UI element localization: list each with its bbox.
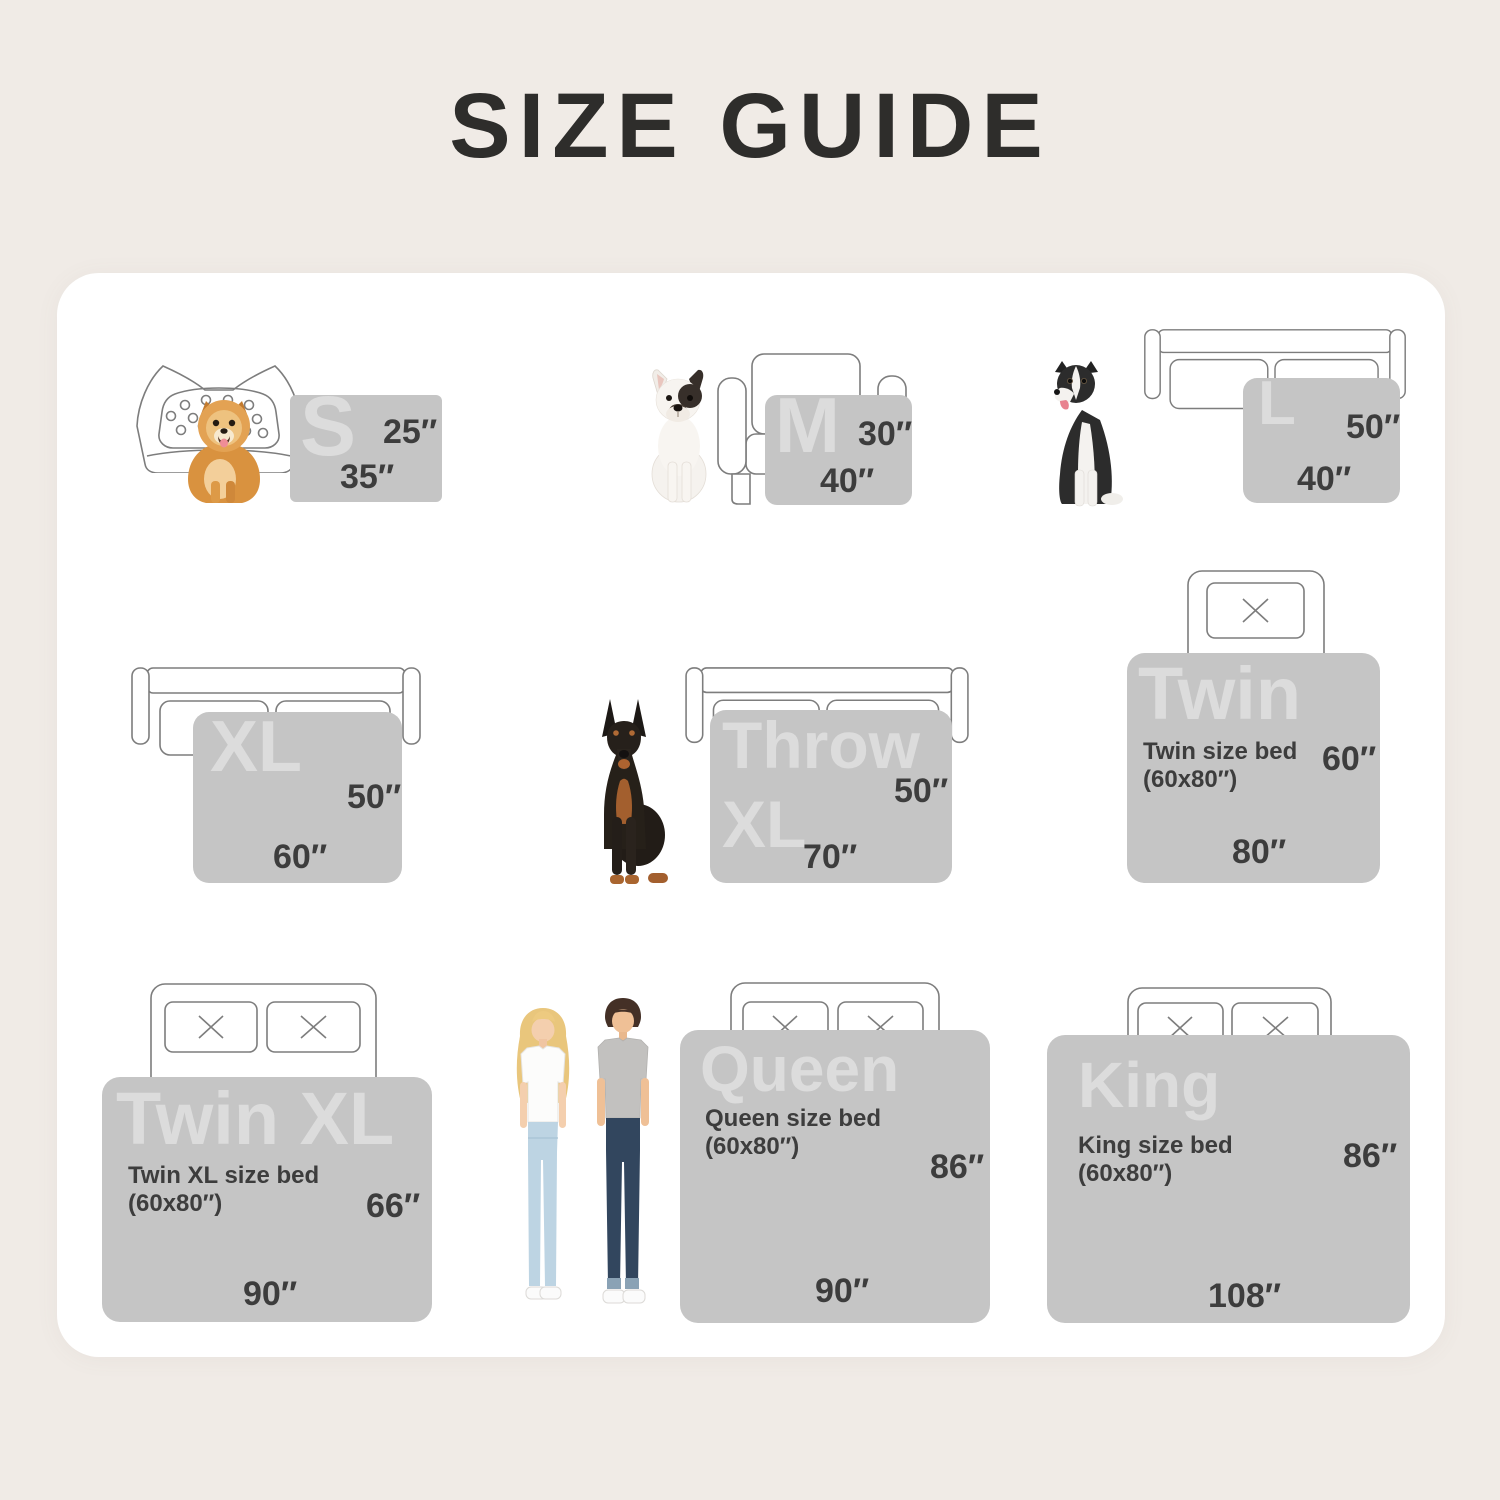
dim-king-side: 86″ [1343,1139,1397,1173]
desc-king: King size bed(60x80″) [1078,1132,1233,1187]
desc-king-line2: (60x80″) [1078,1160,1233,1188]
desc-king-line1: King size bed [1078,1132,1233,1160]
size-guide-infographic: SIZE GUIDE S 25″ 35″ [0,0,1500,1500]
size-cell-king: King King size bed(60x80″) 86″ 108″ [0,0,1500,1500]
dim-king-bottom: 108″ [1208,1279,1281,1313]
size-label-king: King [1078,1053,1220,1117]
